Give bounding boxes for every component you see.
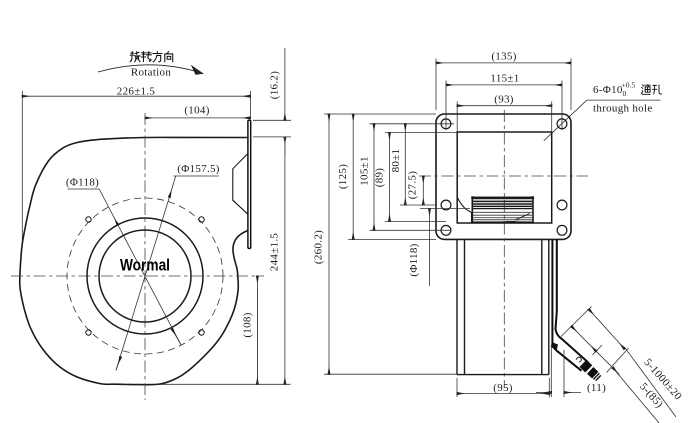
svg-text:Wormal: Wormal: [120, 256, 170, 275]
svg-text:244±1.5: 244±1.5: [269, 233, 281, 272]
svg-text:115±1: 115±1: [490, 73, 519, 85]
svg-text:(16.2): (16.2): [269, 71, 281, 99]
svg-text:(27.5): (27.5): [407, 171, 419, 199]
svg-text:6-Φ10: 6-Φ10: [593, 84, 623, 96]
svg-text:(Φ118): (Φ118): [66, 177, 99, 189]
svg-text:(260.2): (260.2): [313, 230, 325, 264]
svg-text:(125): (125): [337, 164, 349, 189]
svg-text:(135): (135): [491, 51, 516, 63]
svg-text:(11): (11): [587, 382, 606, 394]
svg-text:(104): (104): [184, 105, 209, 117]
svg-text:(95): (95): [493, 382, 513, 394]
svg-text:80±1: 80±1: [390, 149, 402, 173]
svg-text:(Φ118): (Φ118): [408, 243, 420, 276]
svg-text:(Φ157.5): (Φ157.5): [177, 163, 220, 175]
svg-text:(89): (89): [374, 168, 386, 188]
svg-text:0: 0: [623, 89, 627, 98]
svg-text:226±1.5: 226±1.5: [117, 86, 156, 98]
svg-text:(93): (93): [494, 94, 514, 106]
svg-text:Rotation: Rotation: [131, 67, 171, 79]
svg-text:105±1: 105±1: [359, 156, 371, 186]
svg-text:(108): (108): [242, 312, 254, 337]
svg-text:through hole: through hole: [593, 103, 653, 115]
